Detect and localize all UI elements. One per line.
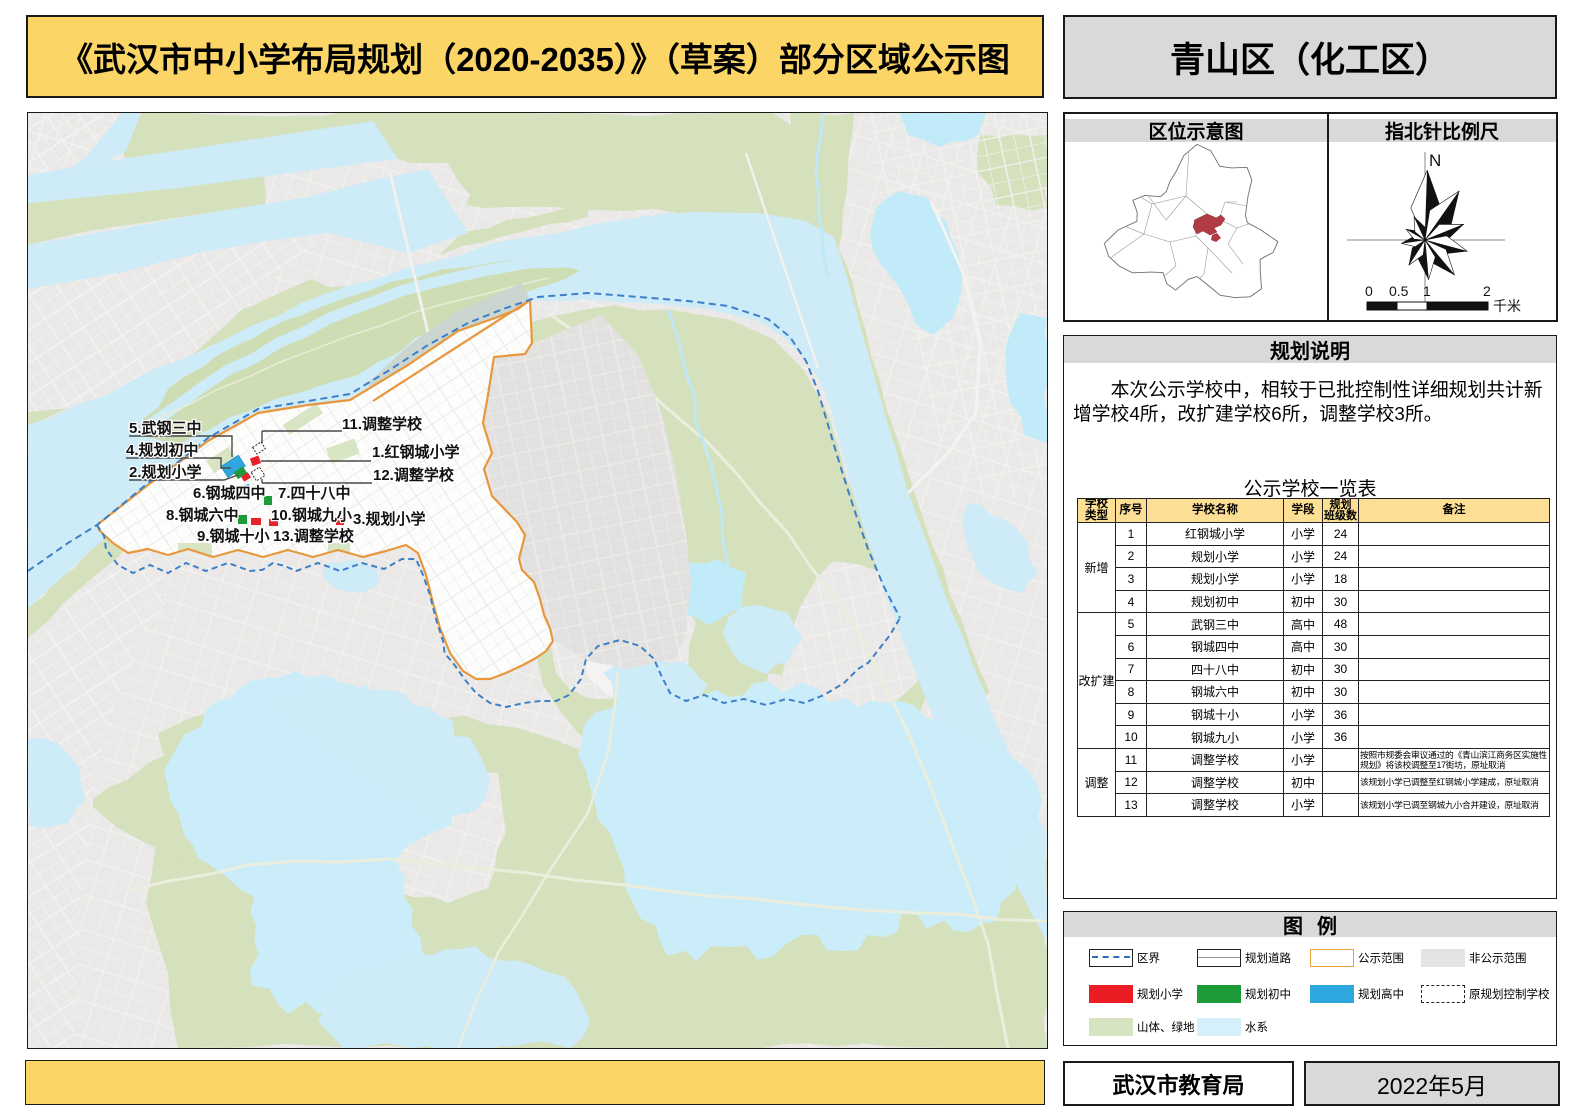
svg-text:2.规划小学: 2.规划小学 bbox=[129, 463, 202, 481]
svg-text:8.钢城六中: 8.钢城六中 bbox=[166, 506, 239, 524]
svg-text:0.5: 0.5 bbox=[1389, 284, 1409, 299]
svg-text:1: 1 bbox=[1423, 284, 1431, 299]
svg-text:3.规划小学: 3.规划小学 bbox=[353, 510, 426, 528]
svg-text:10.钢城九小: 10.钢城九小 bbox=[271, 506, 352, 524]
svg-text:N: N bbox=[1429, 151, 1441, 170]
svg-text:9.钢城十小: 9.钢城十小 bbox=[197, 527, 270, 545]
svg-text:1.红钢城小学: 1.红钢城小学 bbox=[372, 443, 460, 461]
svg-text:2: 2 bbox=[1483, 284, 1491, 299]
svg-text:11.调整学校: 11.调整学校 bbox=[342, 415, 423, 433]
svg-text:4.规划初中: 4.规划初中 bbox=[126, 441, 199, 459]
svg-text:12.调整学校: 12.调整学校 bbox=[373, 466, 455, 484]
svg-text:5.武钢三中: 5.武钢三中 bbox=[129, 419, 202, 437]
svg-text:0: 0 bbox=[1365, 284, 1373, 299]
svg-text:7.四十八中: 7.四十八中 bbox=[278, 484, 351, 502]
svg-text:13.调整学校: 13.调整学校 bbox=[273, 527, 355, 545]
svg-text:6.钢城四中: 6.钢城四中 bbox=[193, 484, 266, 502]
svg-text:千米: 千米 bbox=[1493, 298, 1521, 314]
